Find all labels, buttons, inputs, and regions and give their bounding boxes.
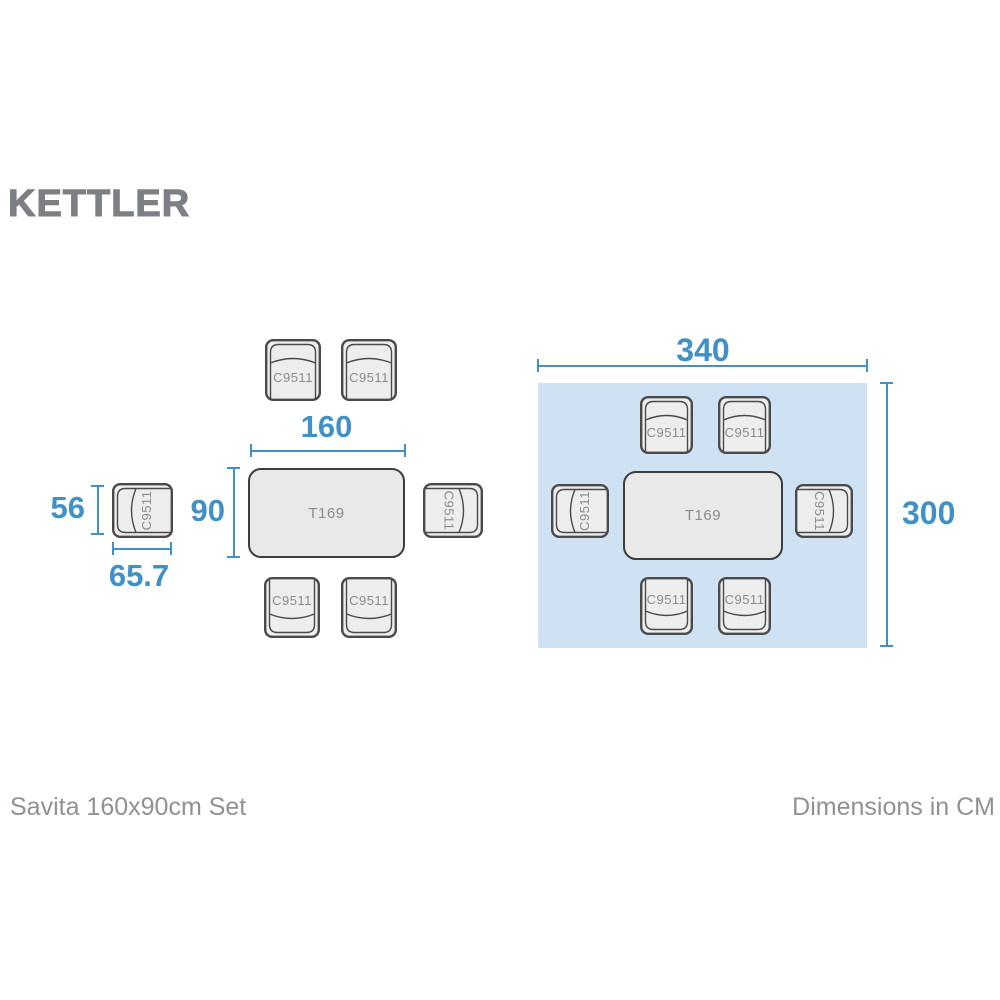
chair-model-label: C9511	[640, 570, 693, 628]
chair-model-label: C9511	[718, 570, 771, 628]
dim-tick	[91, 533, 104, 535]
table-depth-value: 90	[170, 495, 225, 526]
units-note: Dimensions in CM	[792, 793, 995, 822]
dim-tick	[250, 444, 252, 457]
fp-chair-top-1: C9511	[640, 396, 693, 454]
chair-model-label: C9511	[341, 570, 397, 631]
set-chair-right: C9511	[423, 483, 483, 538]
set-chair-bottom-2: C9511	[341, 577, 397, 638]
dimension-sheet: KETTLER 160 90 56 65.7 T169 340	[0, 0, 1000, 1000]
chair-model-label: C9511	[422, 481, 477, 541]
footprint-width-value: 340	[538, 334, 868, 366]
chair-model-label: C9511	[640, 403, 693, 461]
dim-tick	[91, 485, 104, 487]
chair-model-label: C9511	[557, 482, 611, 540]
kettler-logo: KETTLER	[8, 183, 190, 226]
footprint-depth-dim-line	[886, 383, 888, 647]
fp-chair-left: C9511	[551, 484, 609, 538]
set-chair-bottom-1: C9511	[264, 577, 320, 638]
dim-tick	[227, 467, 240, 469]
dim-tick	[880, 382, 893, 384]
chair-depth-value: 65.7	[89, 560, 189, 591]
set-chair-top-2: C9511	[341, 339, 397, 401]
footer: Savita 160x90cm Set Dimensions in CM	[10, 793, 995, 822]
dim-tick	[537, 359, 539, 372]
chair-width-value: 56	[30, 492, 85, 523]
dim-tick	[880, 645, 893, 647]
dim-tick	[404, 444, 406, 457]
fp-chair-right: C9511	[795, 484, 853, 538]
chair-model-label: C9511	[264, 570, 320, 631]
table-model-label: T169	[308, 505, 344, 522]
dim-tick	[866, 359, 868, 372]
dim-tick	[170, 542, 172, 555]
chair-model-label: C9511	[341, 346, 397, 408]
chair-model-label: C9511	[718, 403, 771, 461]
set-chair-top-1: C9511	[265, 339, 321, 401]
table-width-dim-line	[251, 450, 406, 452]
chair-model-label: C9511	[119, 480, 174, 541]
chair-model-label: C9511	[265, 346, 321, 408]
table-depth-dim-line	[233, 468, 235, 558]
fp-chair-top-2: C9511	[718, 396, 771, 454]
dim-tick	[112, 542, 114, 555]
chair-width-dim-line	[97, 486, 99, 535]
dining-table: T169	[248, 468, 405, 558]
table-width-value: 160	[248, 411, 405, 442]
chair-model-label: C9511	[793, 482, 847, 540]
table-model-label: T169	[685, 507, 721, 524]
fp-chair-bottom-2: C9511	[718, 577, 771, 635]
footprint-depth-value: 300	[902, 497, 955, 529]
dim-tick	[227, 556, 240, 558]
set-chair-left: C9511	[112, 483, 173, 538]
dining-table-footprint: T169	[623, 471, 783, 560]
chair-depth-dim-line	[113, 548, 172, 550]
footprint-width-dim-line	[538, 365, 868, 367]
fp-chair-bottom-1: C9511	[640, 577, 693, 635]
product-name: Savita 160x90cm Set	[10, 793, 246, 822]
